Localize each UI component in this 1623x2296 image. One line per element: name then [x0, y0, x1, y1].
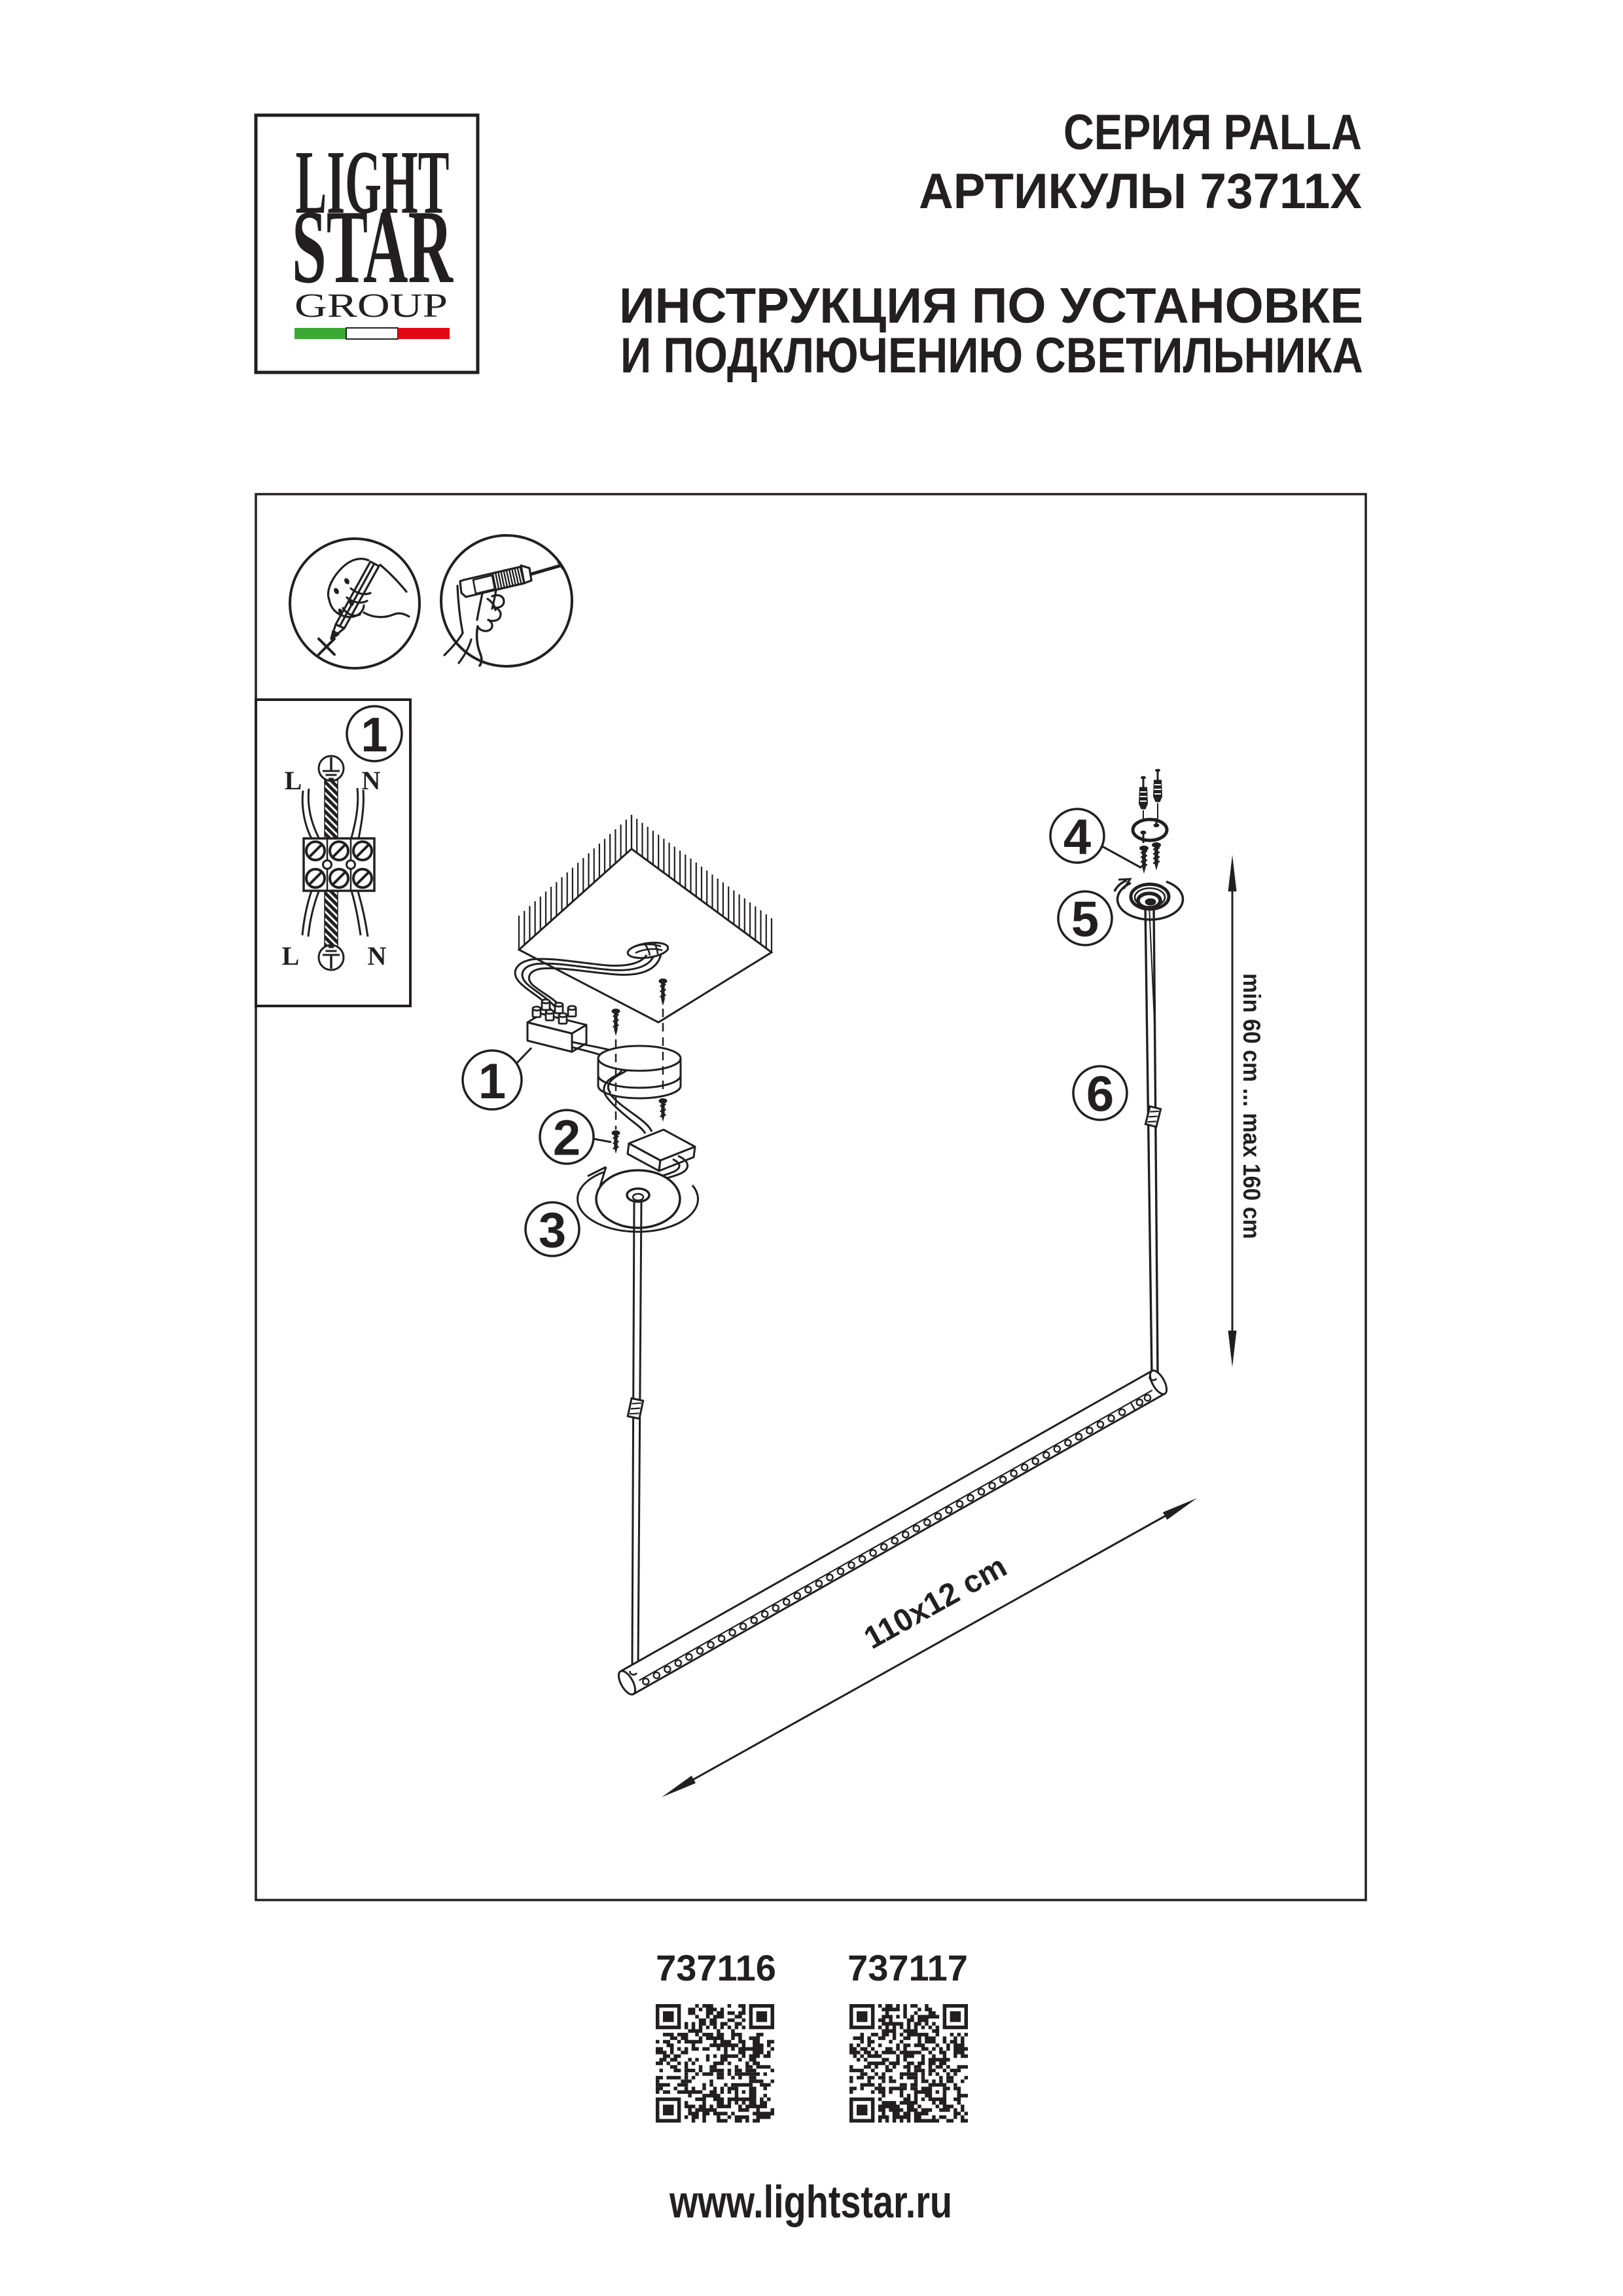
- svg-text:5: 5: [1071, 891, 1099, 947]
- svg-text:737117: 737117: [847, 1947, 968, 1988]
- svg-text:min 60 cm ... max 160 cm: min 60 cm ... max 160 cm: [1238, 973, 1265, 1239]
- svg-text:6: 6: [1086, 1066, 1114, 1122]
- svg-text:L: L: [282, 941, 300, 971]
- svg-text:GROUP: GROUP: [294, 287, 448, 325]
- svg-text:737116: 737116: [656, 1947, 776, 1988]
- svg-text:1: 1: [361, 708, 387, 762]
- svg-text:L: L: [285, 766, 302, 795]
- svg-text:СЕРИЯ PALLA: СЕРИЯ PALLA: [1063, 105, 1362, 160]
- svg-text:2: 2: [553, 1110, 580, 1166]
- svg-text:1: 1: [478, 1054, 506, 1109]
- svg-text:4: 4: [1063, 809, 1091, 865]
- svg-text:3: 3: [539, 1202, 566, 1258]
- svg-text:N: N: [362, 766, 381, 795]
- svg-text:N: N: [368, 941, 387, 971]
- svg-text:www.lightstar.ru: www.lightstar.ru: [669, 2176, 952, 2227]
- svg-text:АРТИКУЛЫ 73711X: АРТИКУЛЫ 73711X: [919, 164, 1362, 219]
- svg-text:ИНСТРУКЦИЯ ПО УСТАНОВКЕ: ИНСТРУКЦИЯ ПО УСТАНОВКЕ: [619, 278, 1363, 334]
- svg-text:И ПОДКЛЮЧЕНИЮ СВЕТИЛЬНИКА: И ПОДКЛЮЧЕНИЮ СВЕТИЛЬНИКА: [620, 328, 1363, 384]
